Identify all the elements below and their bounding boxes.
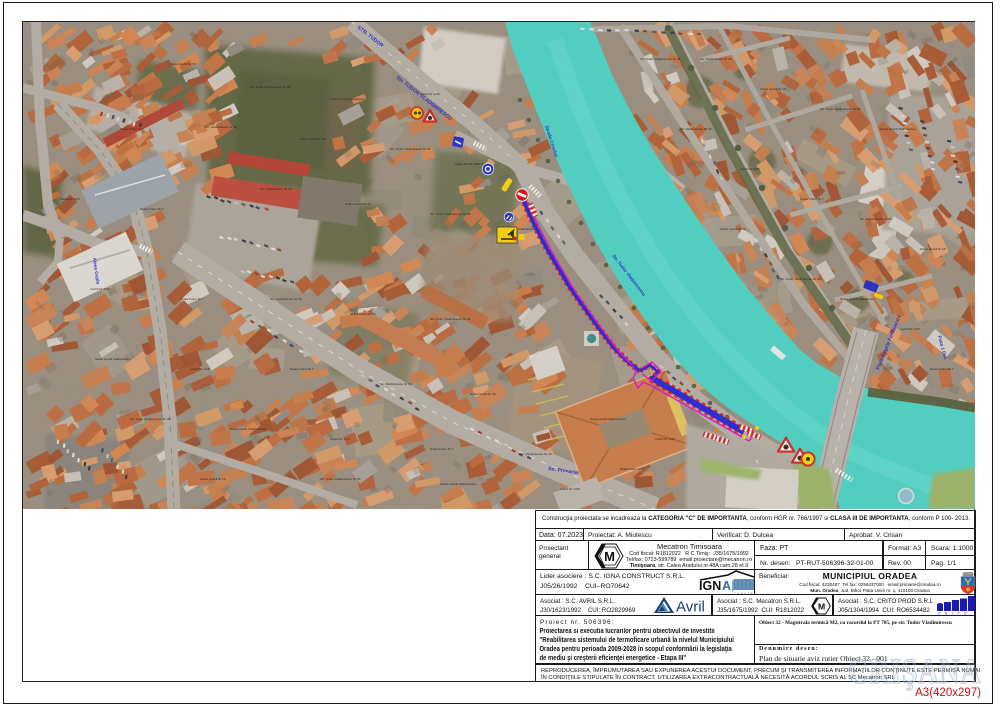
svg-text:A: A <box>722 579 731 593</box>
svg-text:M: M <box>818 601 825 611</box>
svg-text:IGN: IGN <box>699 579 721 593</box>
svg-text:Avril: Avril <box>676 599 705 616</box>
svg-text:M: M <box>604 549 615 564</box>
